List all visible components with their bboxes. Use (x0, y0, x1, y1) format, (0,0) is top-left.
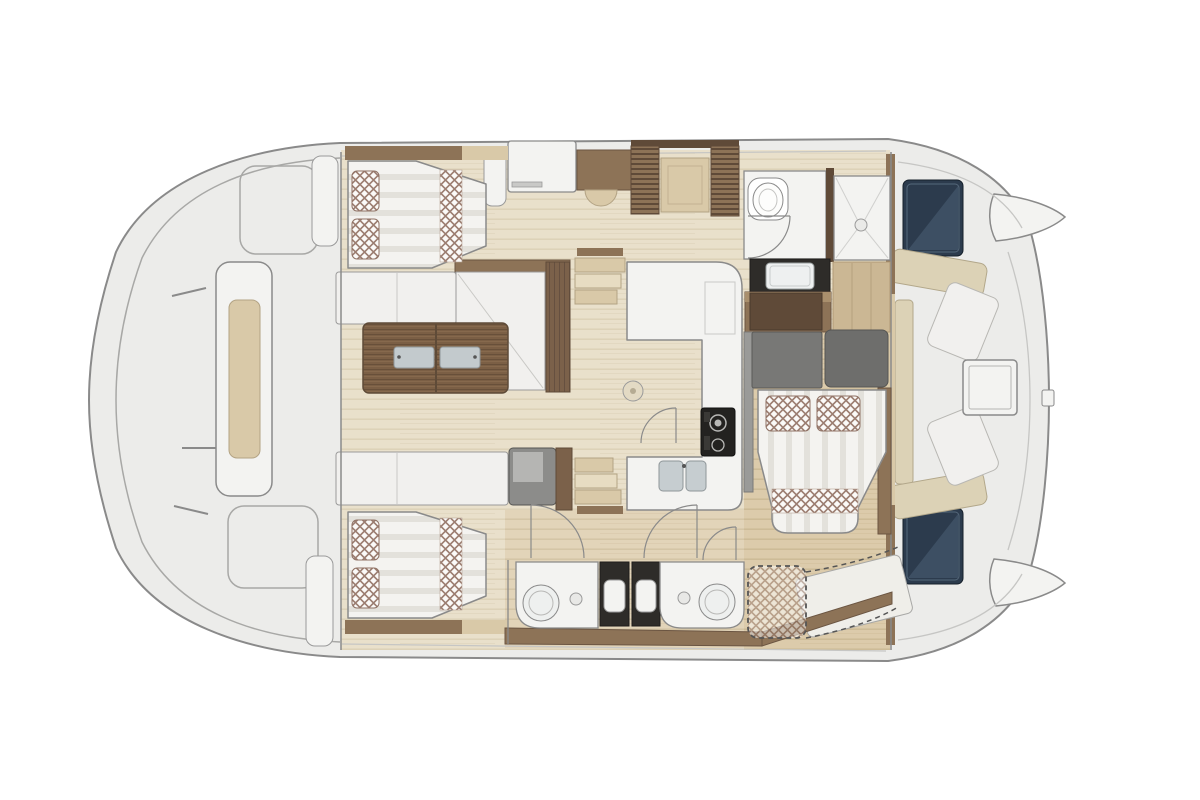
toilet-left (604, 580, 625, 612)
step (575, 490, 621, 504)
cabin-trim-wood-bottom (345, 620, 462, 634)
foredeck-pod-bottom (306, 556, 333, 646)
berth-starboard-pillow-1 (352, 520, 379, 560)
aft-bed-pillow-left (766, 396, 810, 431)
toilet-right (636, 580, 656, 612)
sofa-top-bench (336, 272, 456, 324)
step (575, 458, 613, 472)
aft-cabin-cabinet-dark (750, 293, 822, 330)
aft-bed-runner (772, 489, 858, 513)
stove-knob-panel-2 (704, 436, 710, 450)
transom-step-notch (1042, 390, 1054, 406)
cabin-trim-wood (345, 146, 462, 160)
yacht-floorplan-canvas (0, 0, 1200, 800)
cockpit-table (963, 360, 1017, 415)
optional-berth-dashed (748, 566, 806, 638)
berth-starboard-pillow-2 (352, 568, 379, 608)
step (577, 248, 623, 256)
faucet-left (570, 593, 582, 605)
cockpit-bench-side (895, 300, 913, 484)
step (575, 258, 625, 272)
sofa-backrest-wood-side (546, 262, 570, 392)
step (575, 474, 617, 488)
floor-hatch-pull (630, 388, 636, 394)
table-handle-pin-left (397, 355, 401, 359)
step (575, 290, 617, 304)
sofa-bottom-bench (336, 452, 508, 505)
wc-shower-wall (826, 168, 834, 262)
basin-right (699, 584, 735, 620)
saloon-grey-module-top (513, 452, 543, 482)
step (575, 274, 621, 288)
foredeck-locker-lid (229, 300, 260, 458)
berth-port-pillow-2 (352, 219, 379, 259)
saloon (336, 260, 572, 510)
foredeck-pod-top (312, 156, 338, 246)
table-handle-pin-right (473, 355, 477, 359)
cabin-trim-beige-bottom (462, 620, 508, 634)
shower-drain (855, 219, 867, 231)
stove-burner-large-center (715, 420, 722, 427)
plank-shelf (833, 262, 890, 332)
berth-port-runner (440, 170, 462, 262)
saloon-module-wood-side (556, 448, 572, 510)
galley-faucet (682, 464, 686, 468)
basin-left (523, 585, 559, 621)
berth-port-pillow-1 (352, 171, 379, 211)
faucet-right (678, 592, 690, 604)
galley-sink-right (686, 461, 706, 491)
wardrobe-louver-1 (631, 146, 659, 214)
sideboard-wood (577, 150, 631, 190)
fridge-handle (512, 182, 542, 187)
toilet-bowl (753, 183, 783, 217)
step (577, 506, 623, 514)
aft-cabin-desk-right (825, 330, 888, 387)
berth-starboard-runner (440, 518, 462, 610)
stove-knob-panel-1 (704, 412, 710, 422)
transom-tip-bottom (990, 559, 1065, 606)
aft-bed-pillow-right (817, 396, 860, 431)
galley-sink-left (659, 461, 683, 491)
floorplan-svg (0, 0, 1200, 800)
cabin-trim-beige (462, 146, 508, 160)
aft-cabin-desk-left (752, 332, 822, 388)
head-vanity-sink (766, 263, 814, 289)
wardrobe-louver-2 (711, 146, 739, 216)
